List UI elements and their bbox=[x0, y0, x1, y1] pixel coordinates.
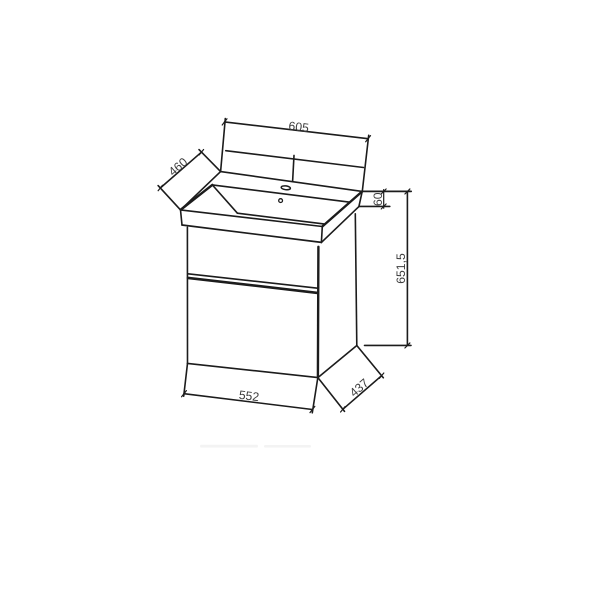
svg-text:605: 605 bbox=[288, 119, 310, 135]
svg-text:437: 437 bbox=[347, 376, 372, 400]
svg-text:651,5: 651,5 bbox=[394, 253, 408, 284]
svg-text:460: 460 bbox=[166, 155, 191, 179]
svg-text:60: 60 bbox=[371, 192, 385, 206]
svg-text:552: 552 bbox=[238, 388, 260, 404]
